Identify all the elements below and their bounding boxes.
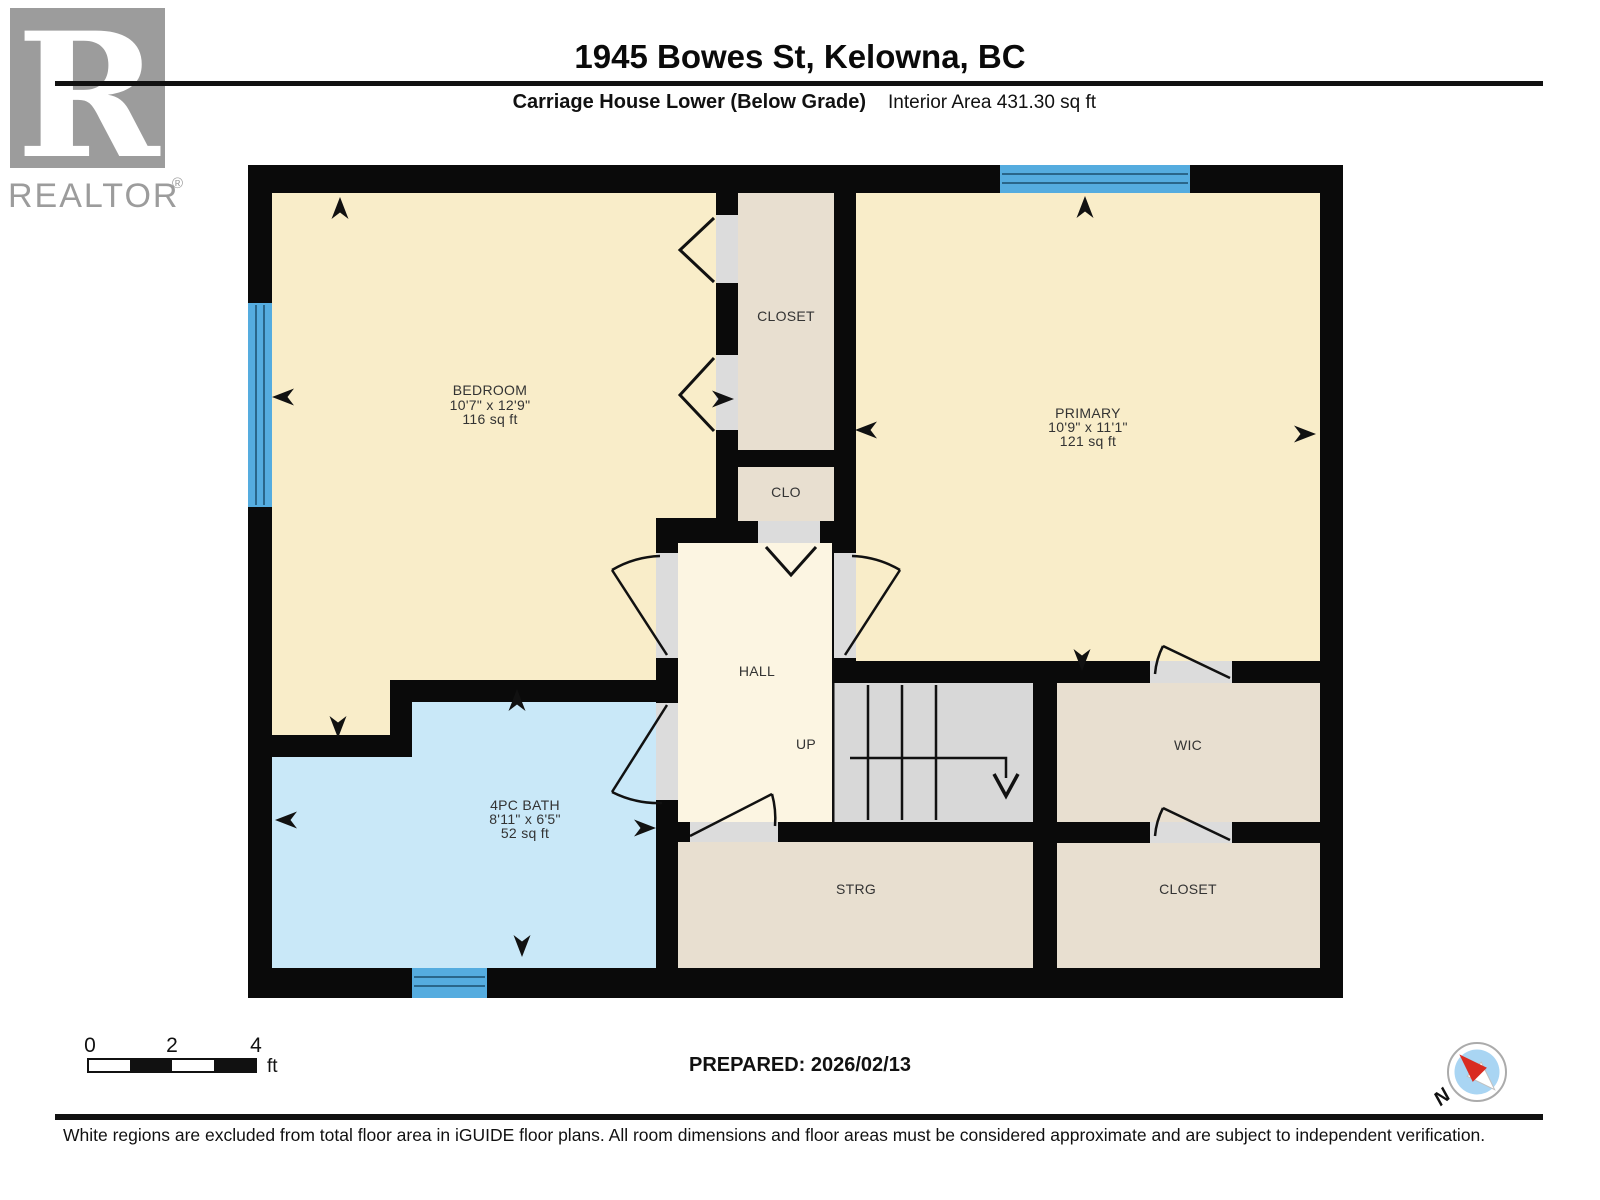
- realtor-logo-letter: R: [17, 0, 161, 197]
- realtor-wordmark: REALTOR: [8, 177, 179, 215]
- bath-area: 52 sq ft: [501, 825, 549, 841]
- floor-label: Carriage House Lower (Below Grade): [513, 91, 866, 113]
- scale-tick-4: 4: [250, 1034, 262, 1057]
- footer-disclaimer: White regions are excluded from total fl…: [63, 1125, 1485, 1145]
- scale-bar-segment: [214, 1059, 256, 1072]
- stairs-up-label: UP: [796, 736, 816, 752]
- realtor-logo: R: [10, 0, 165, 197]
- scale-tick-2: 2: [166, 1034, 178, 1057]
- door-opening-bedroom-closet-2: [716, 355, 738, 430]
- room-hall: [678, 543, 832, 822]
- closet-top-name: CLOSET: [757, 308, 815, 324]
- floorplan-page: R 1945 Bowes St, Kelowna, BC Carriage Ho…: [0, 0, 1600, 1200]
- compass-icon: N: [1430, 1043, 1506, 1110]
- clo-name: CLO: [771, 484, 801, 500]
- door-opening-closet-right: [1150, 822, 1232, 843]
- scale-bar: 0 2 4 ft: [84, 1034, 278, 1077]
- closet-right-name: CLOSET: [1159, 881, 1217, 897]
- header-rule: [55, 81, 1543, 86]
- window-primary-top: [1000, 165, 1190, 193]
- floorplan-canvas: R 1945 Bowes St, Kelowna, BC Carriage Ho…: [0, 0, 1600, 1200]
- window-bath-bottom: [412, 968, 487, 998]
- scale-tick-0: 0: [84, 1034, 96, 1057]
- scale-bar-segment: [130, 1059, 172, 1072]
- footer-rule: [55, 1114, 1543, 1120]
- prepared-date: PREPARED: 2026/02/13: [689, 1054, 911, 1076]
- strg-name: STRG: [836, 881, 876, 897]
- bedroom-area: 116 sq ft: [462, 411, 517, 427]
- room-strg: [678, 842, 1033, 968]
- scale-unit-label: ft: [267, 1056, 278, 1077]
- door-opening-strg: [690, 822, 778, 842]
- registered-mark: ®: [172, 175, 183, 192]
- room-bedroom: [272, 193, 716, 735]
- room-closet-right: [1057, 843, 1320, 968]
- window-bedroom-left: [248, 303, 272, 507]
- hall-name: HALL: [739, 663, 775, 679]
- stairs-area: [834, 683, 1033, 822]
- compass-north-label: N: [1430, 1084, 1456, 1110]
- page-title: 1945 Bowes St, Kelowna, BC: [574, 38, 1025, 75]
- door-opening-bedroom-closet-1: [716, 215, 738, 283]
- bedroom-name: BEDROOM: [453, 382, 527, 398]
- wic-name: WIC: [1174, 737, 1202, 753]
- interior-area-label: Interior Area 431.30 sq ft: [888, 92, 1097, 113]
- primary-area: 121 sq ft: [1060, 433, 1116, 449]
- door-opening-clo: [758, 521, 820, 543]
